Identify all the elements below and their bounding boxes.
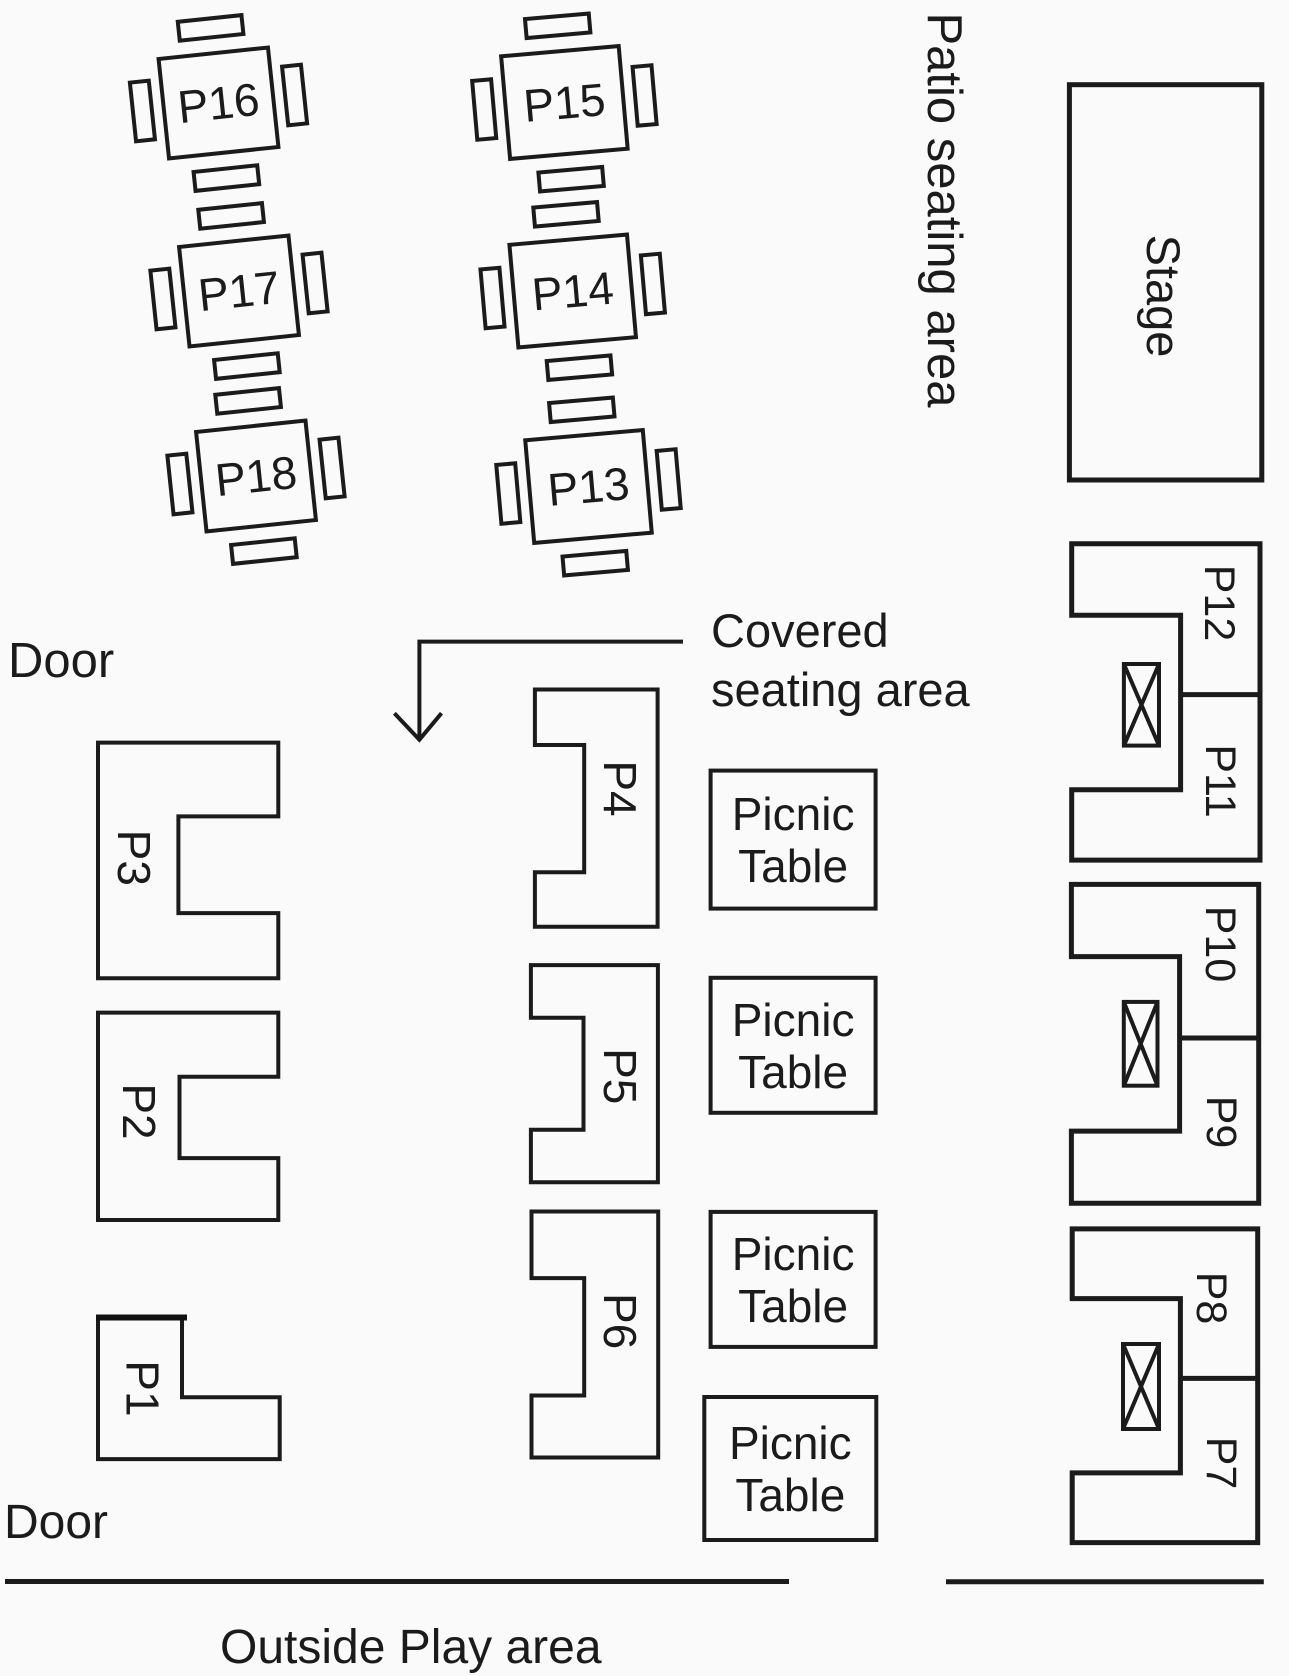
svg-text:P17: P17 [196, 261, 283, 321]
svg-text:Picnic: Picnic [732, 1228, 855, 1280]
svg-text:P2: P2 [113, 1083, 165, 1139]
svg-text:Picnic: Picnic [729, 1417, 852, 1469]
svg-text:P13: P13 [545, 457, 631, 516]
svg-text:P11: P11 [1196, 744, 1244, 817]
svg-text:Covered: Covered [711, 604, 889, 657]
svg-text:P6: P6 [594, 1293, 646, 1349]
svg-text:P16: P16 [175, 73, 262, 133]
svg-text:P10: P10 [1196, 906, 1244, 983]
svg-text:seating area: seating area [711, 663, 971, 716]
svg-text:P3: P3 [108, 830, 160, 886]
svg-text:P7: P7 [1197, 1437, 1245, 1490]
svg-text:P9: P9 [1197, 1096, 1245, 1149]
svg-text:Table: Table [738, 1280, 848, 1332]
svg-text:P12: P12 [1195, 565, 1243, 642]
svg-text:P14: P14 [530, 262, 616, 321]
svg-text:Door: Door [8, 634, 114, 688]
svg-text:P5: P5 [594, 1048, 646, 1104]
svg-text:Door: Door [4, 1496, 108, 1549]
svg-text:P4: P4 [594, 760, 646, 816]
svg-text:P1: P1 [117, 1360, 169, 1416]
svg-text:P18: P18 [213, 446, 300, 506]
svg-text:Outside Play area: Outside Play area [220, 1621, 602, 1674]
svg-text:Table: Table [738, 1046, 848, 1098]
svg-text:Table: Table [738, 840, 848, 892]
svg-text:P8: P8 [1187, 1272, 1235, 1325]
svg-text:Picnic: Picnic [732, 788, 855, 840]
svg-text:Patio seating area: Patio seating area [917, 13, 971, 409]
svg-text:Stage: Stage [1137, 235, 1190, 358]
svg-text:P15: P15 [521, 73, 607, 132]
svg-text:Table: Table [735, 1469, 845, 1521]
svg-text:Picnic: Picnic [732, 994, 855, 1046]
